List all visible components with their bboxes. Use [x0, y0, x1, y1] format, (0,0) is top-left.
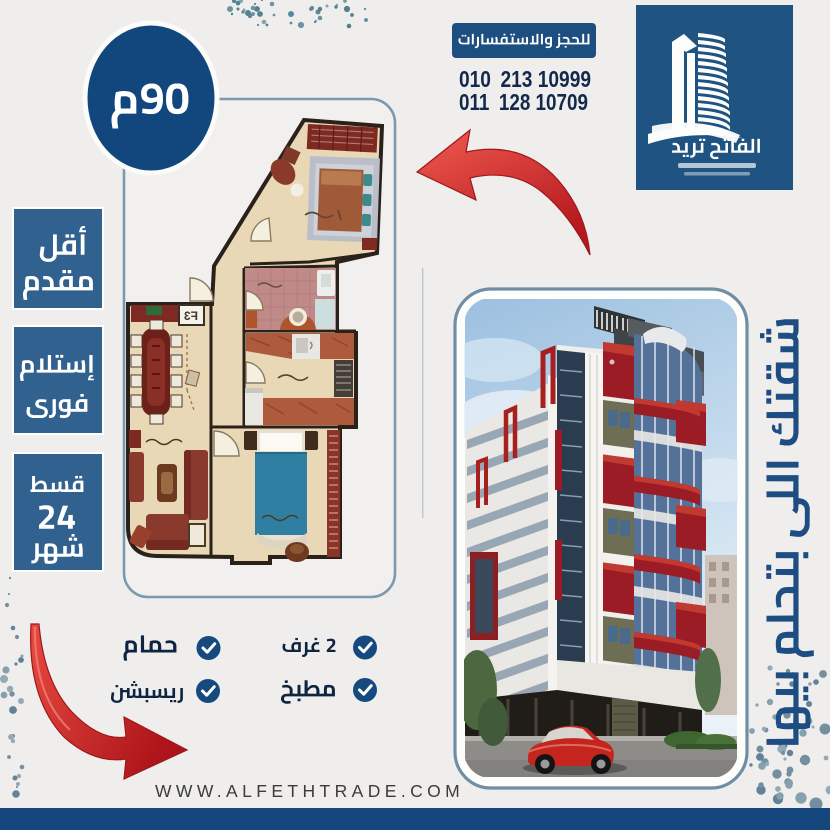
svg-text:F3: F3: [184, 309, 198, 323]
svg-text:011 128 10709: 011 128 10709: [459, 89, 588, 115]
svg-text:WWW.ALFETHTRADE.COM: WWW.ALFETHTRADE.COM: [155, 781, 464, 801]
